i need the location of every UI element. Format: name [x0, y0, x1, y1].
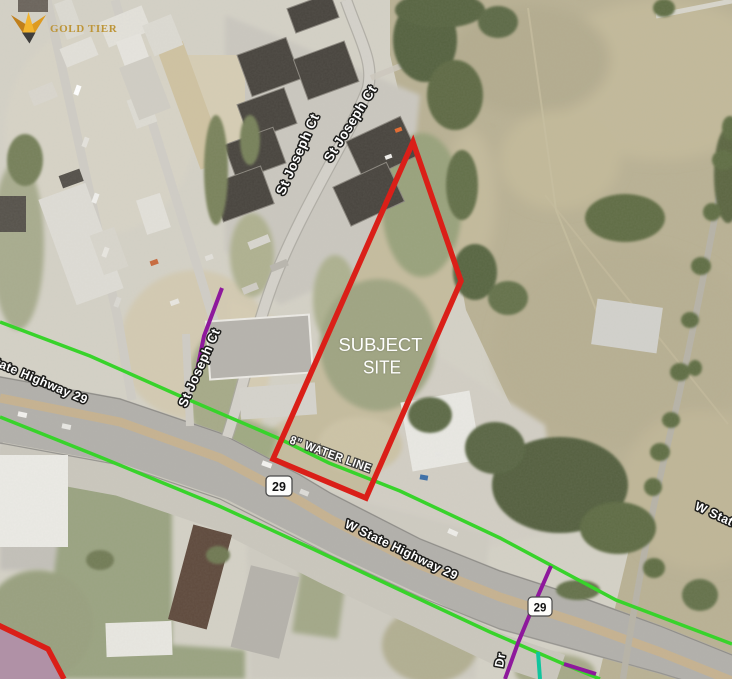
svg-text:Dr: Dr: [492, 652, 508, 669]
svg-text:GOLD TIER: GOLD TIER: [50, 23, 118, 35]
svg-text:SUBJECT: SUBJECT: [339, 334, 423, 355]
svg-text:29: 29: [272, 480, 286, 494]
svg-text:SITE: SITE: [363, 356, 401, 377]
svg-text:29: 29: [534, 603, 547, 615]
